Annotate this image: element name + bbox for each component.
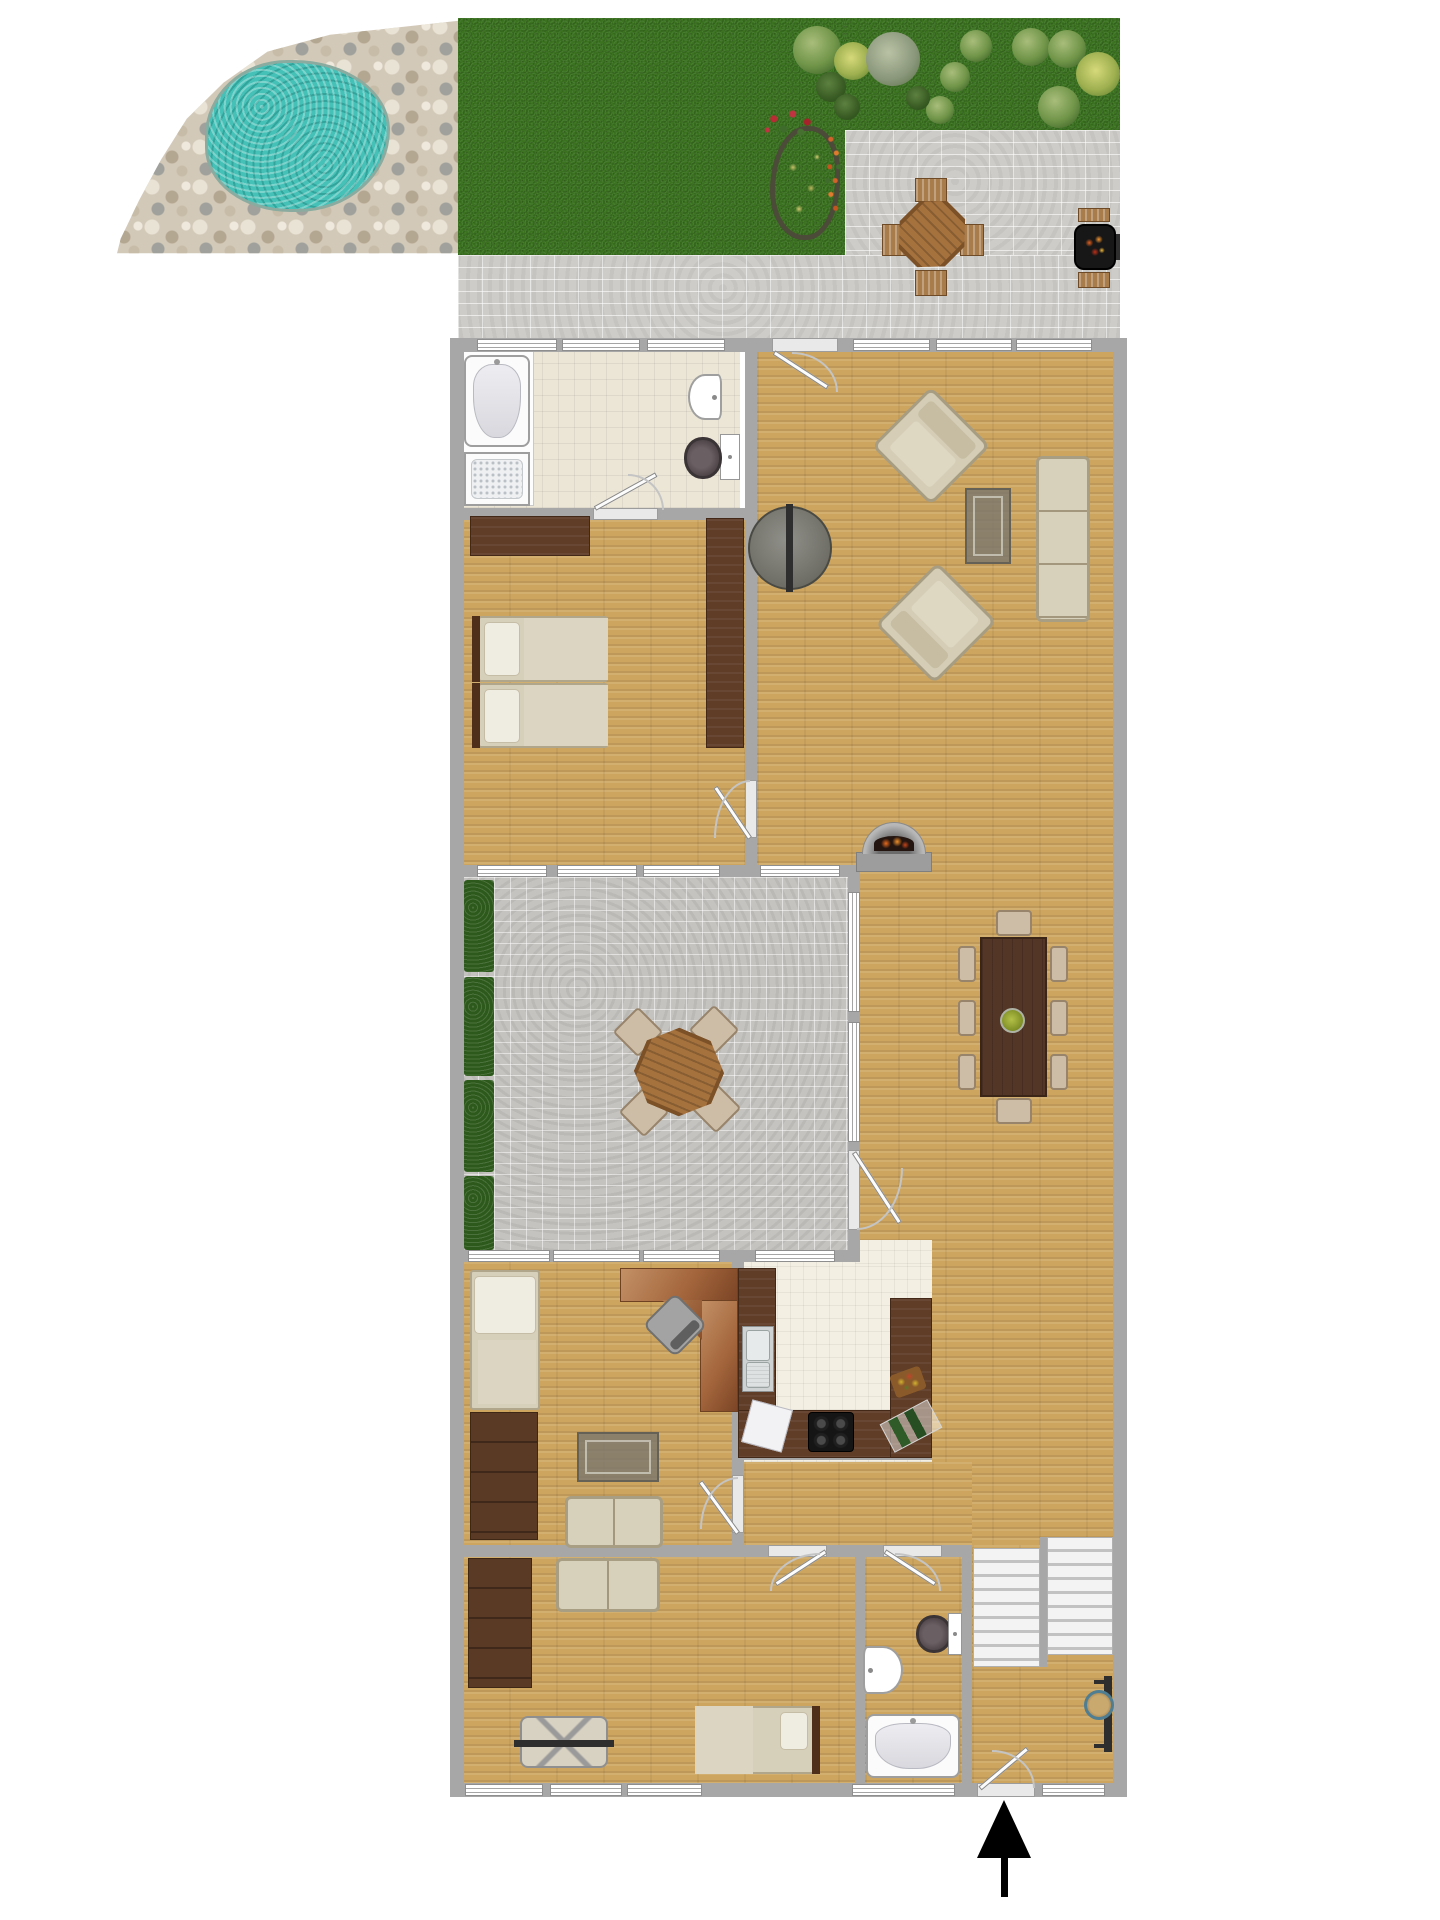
bbq-grill xyxy=(1074,224,1116,270)
bed-blanket xyxy=(695,1706,753,1774)
window xyxy=(477,339,557,351)
bush xyxy=(926,96,954,124)
bush xyxy=(940,62,970,92)
floor-plan xyxy=(0,0,1440,1920)
hedge-segment xyxy=(464,977,494,1076)
sink-main-bath xyxy=(688,374,722,420)
bush xyxy=(834,94,860,120)
window xyxy=(853,339,930,351)
loveseat-office xyxy=(565,1496,663,1548)
bush xyxy=(1012,28,1050,66)
dining-chair xyxy=(1050,1054,1068,1090)
bed-blanket xyxy=(524,618,608,680)
wall-courtyard-east-lower xyxy=(848,1230,860,1262)
window xyxy=(760,865,840,877)
window xyxy=(848,892,860,1012)
hedge-segment xyxy=(464,1080,494,1172)
staircase-right-flight xyxy=(1047,1537,1113,1655)
sofa-living xyxy=(1036,456,1090,622)
patio-chair-south xyxy=(915,270,947,296)
floor-hallway xyxy=(744,1462,972,1545)
entrance-arrow-shaft xyxy=(1001,1857,1008,1897)
dining-chair xyxy=(958,946,976,982)
patio-strip xyxy=(458,255,1120,338)
bush xyxy=(793,26,841,74)
sink-bath2 xyxy=(863,1646,903,1694)
window xyxy=(755,1250,835,1262)
window xyxy=(852,1784,955,1796)
grill-handle xyxy=(1116,234,1120,260)
bush xyxy=(960,30,992,62)
window xyxy=(553,1250,640,1262)
window xyxy=(1016,339,1092,351)
stair-divider xyxy=(1040,1537,1047,1667)
floor-kitchen-north xyxy=(855,1240,932,1264)
butterfly-chair-bar xyxy=(514,1740,614,1747)
coat-hook xyxy=(1094,1680,1104,1684)
bed-headboard xyxy=(472,683,480,748)
window xyxy=(557,865,637,877)
dining-chair xyxy=(958,1054,976,1090)
fireplace-fire xyxy=(874,836,914,851)
grill-side-table-north xyxy=(1078,208,1110,222)
hedge-segment xyxy=(464,1176,494,1250)
entrance-arrow-head xyxy=(977,1800,1031,1858)
window xyxy=(1042,1784,1105,1796)
coffee-table-office xyxy=(577,1432,659,1482)
bathtub-2 xyxy=(866,1714,960,1778)
bush xyxy=(1038,86,1080,128)
wall-exterior-right xyxy=(1113,338,1127,1797)
basket xyxy=(1084,1690,1114,1720)
dining-chair xyxy=(996,1098,1032,1124)
shower-main xyxy=(464,452,530,506)
window xyxy=(468,1250,550,1262)
wardrobe xyxy=(706,518,744,748)
window xyxy=(647,339,725,351)
bathtub-main xyxy=(464,355,530,447)
window xyxy=(643,1250,720,1262)
fireplace-base xyxy=(856,852,932,872)
round-table-leg xyxy=(786,504,793,592)
wall-exterior-left xyxy=(450,338,464,1797)
bush xyxy=(906,86,930,110)
dining-chair xyxy=(1050,1000,1068,1036)
coffee-table xyxy=(965,488,1011,564)
bookshelf-office xyxy=(470,1412,538,1540)
bed-pillow xyxy=(780,1712,808,1750)
window xyxy=(936,339,1012,351)
bed-blanket xyxy=(524,685,608,746)
desk-side xyxy=(700,1300,738,1412)
wall-bath2-east xyxy=(962,1545,972,1785)
toilet-main xyxy=(684,437,722,479)
flower-bed-orange xyxy=(822,130,844,222)
wall-south-corridor-2 xyxy=(827,1545,883,1557)
staircase-left-flight xyxy=(973,1548,1040,1667)
patio-chair-north xyxy=(915,178,947,202)
window xyxy=(848,1022,860,1142)
daybed-cushion xyxy=(478,1340,536,1404)
coat-hook xyxy=(1094,1744,1104,1748)
bed-headboard xyxy=(812,1706,820,1774)
window xyxy=(465,1784,543,1796)
door-threshold-patio xyxy=(772,338,838,352)
bed-pillow xyxy=(484,622,520,676)
dining-chair xyxy=(1050,946,1068,982)
bed-pillow xyxy=(484,689,520,743)
toilet-tank-2 xyxy=(948,1613,962,1655)
stove xyxy=(808,1412,854,1452)
bush xyxy=(1076,52,1120,96)
bed-headboard xyxy=(472,616,480,682)
window xyxy=(627,1784,702,1796)
dining-chair xyxy=(958,1000,976,1036)
centerpiece-bowl xyxy=(1000,1008,1025,1033)
toilet-2 xyxy=(916,1615,952,1653)
dining-chair xyxy=(996,910,1032,936)
loveseat-bed2 xyxy=(556,1558,660,1612)
bookshelf-bed2 xyxy=(468,1558,532,1688)
hedge-segment xyxy=(464,880,494,972)
dresser xyxy=(470,516,590,556)
toilet-tank-main xyxy=(720,434,740,480)
window xyxy=(477,865,547,877)
flower-bed-red xyxy=(763,106,817,138)
window xyxy=(550,1784,622,1796)
window xyxy=(562,339,640,351)
window xyxy=(643,865,720,877)
daybed-pillow xyxy=(474,1276,536,1334)
kitchen-sink xyxy=(742,1326,774,1392)
bush xyxy=(866,32,920,86)
grill-side-table-south xyxy=(1078,272,1110,288)
